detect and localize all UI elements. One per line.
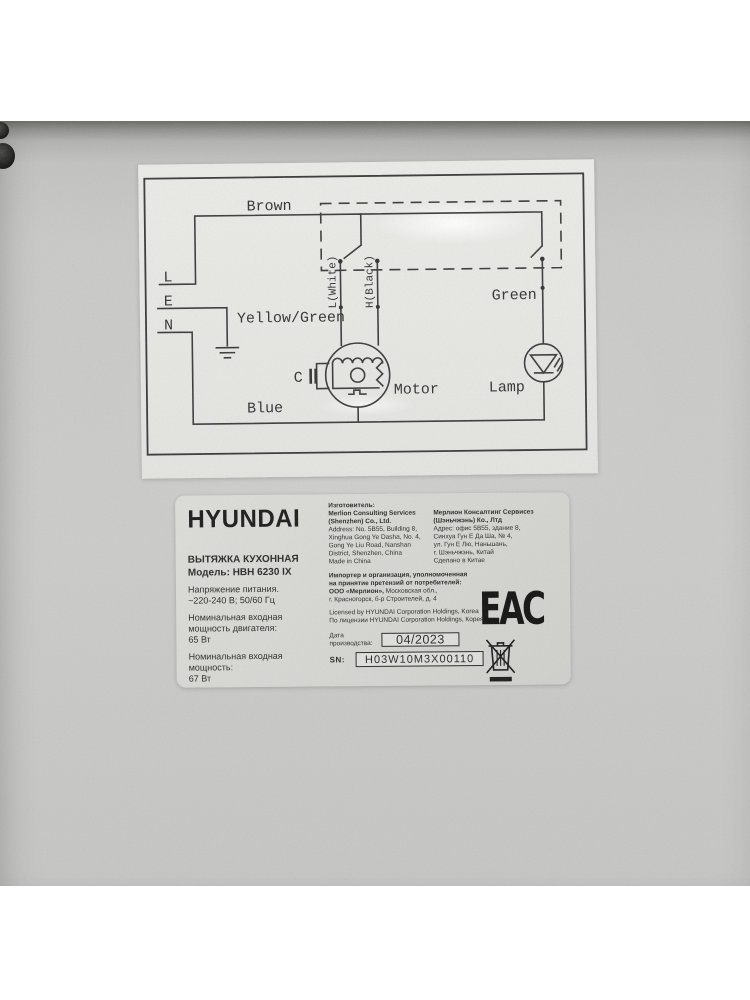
model-number: Модель: HBH 6230 IX: [188, 566, 316, 578]
appliance-photo: Brown L E N Yellow/Green Blue Green L(Wh…: [0, 0, 750, 1000]
wire-label-l-white: L(White): [327, 256, 340, 309]
manufacturer-block: Изготовитель: Merlion Consulting Service…: [328, 500, 562, 566]
wire-label-yellow-green: Yellow/Green: [237, 309, 345, 327]
label-right-column: Изготовитель: Merlion Consulting Service…: [315, 500, 563, 680]
product-rating-label: HYUNDAI ВЫТЯЖКА КУХОННАЯ Модель: HBH 623…: [175, 492, 571, 687]
terminal-l: L: [163, 269, 172, 286]
wire-label-green: Green: [492, 287, 537, 305]
wires: [157, 212, 545, 425]
manufacturer-ru: Мерлион Консалтинг Сервисез (Шэньчжэнь) …: [425, 500, 552, 565]
capacitor-label: C: [294, 370, 303, 387]
screw-hole-icon: [0, 143, 15, 169]
importer-block: Импортер и организация, уполномоченная н…: [329, 571, 499, 604]
production-date-value: 04/2023: [381, 632, 459, 647]
screw-hole-icon: [0, 122, 9, 139]
brand-logo: HYUNDAI: [187, 505, 315, 535]
serial-number-label: SN:: [330, 656, 356, 664]
lamp-label: Lamp: [489, 379, 525, 396]
terminal-e: E: [164, 293, 173, 310]
eac-mark: ЕАС: [479, 585, 530, 639]
manufacturer-en: Изготовитель: Merlion Consulting Service…: [328, 502, 426, 567]
wiring-diagram: Brown L E N Yellow/Green Blue Green L(Wh…: [138, 159, 598, 479]
switch-box-dashed: [321, 201, 562, 271]
weee-crossed-bin-icon: [484, 637, 516, 686]
wire-label-blue: Blue: [247, 400, 283, 417]
serial-number-row: SN: H03W10M3X00110: [330, 651, 490, 667]
product-type: ВЫТЯЖКА КУХОННАЯ: [188, 553, 316, 565]
spec-voltage: Напряжение питания. ~220-240 В; 50/60 Гц: [188, 583, 316, 606]
serial-number-value: H03W10M3X00110: [356, 651, 484, 667]
production-date-row: Дата производства: 04/2023: [329, 631, 489, 648]
wire-label-brown: Brown: [247, 198, 292, 216]
wiring-diagram-sticker: Brown L E N Yellow/Green Blue Green L(Wh…: [138, 159, 598, 479]
lamp-symbol: [524, 344, 562, 382]
appliance-panel: Brown L E N Yellow/Green Blue Green L(Wh…: [0, 121, 750, 886]
production-date-label: Дата производства:: [329, 632, 381, 648]
wire-label-h-black: H(Black): [364, 255, 377, 308]
terminal-n: N: [164, 317, 173, 334]
spec-input-power: Номинальная входная мощность: 67 Вт: [189, 650, 317, 684]
spec-motor-power: Номинальная входная мощность двигателя: …: [188, 611, 316, 645]
motor-label: Motor: [394, 381, 439, 399]
label-left-column: HYUNDAI ВЫТЯЖКА КУХОННАЯ Модель: HBH 623…: [187, 503, 317, 682]
motor-symbol: [325, 343, 390, 408]
